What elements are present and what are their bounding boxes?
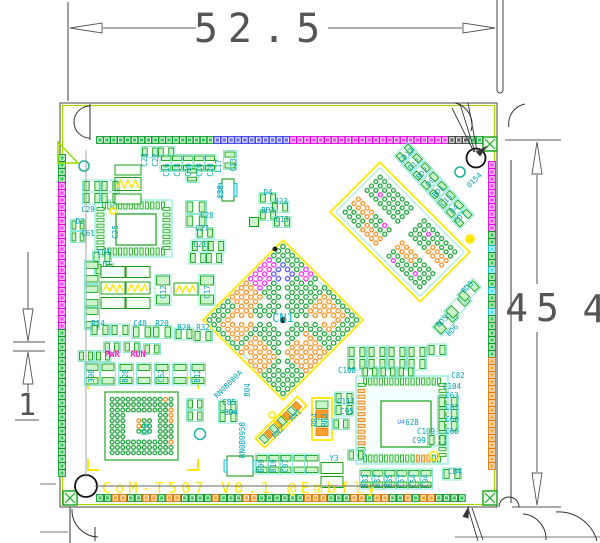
pad — [188, 412, 192, 420]
edge-pad-drill — [490, 275, 493, 278]
passive-c — [333, 419, 350, 430]
pad — [224, 460, 227, 472]
bga-ball-pad — [252, 335, 258, 341]
bga-ball-pad — [351, 209, 357, 215]
pad — [102, 194, 107, 203]
refdes-label: RR3 — [320, 413, 329, 427]
pad — [174, 377, 186, 383]
label-cn1: CN1 — [272, 311, 294, 325]
bga-ball-pad — [426, 249, 432, 255]
qfp-pad — [374, 455, 377, 462]
bga-ball-pad — [284, 377, 290, 383]
bga-ball-pad — [426, 266, 432, 272]
dimension-arrowhead — [532, 142, 542, 174]
refdes-label: R32 — [196, 323, 210, 332]
edge-pad-drill — [490, 443, 493, 446]
edge-pad-drill — [209, 138, 212, 141]
edge-pad-drill — [105, 138, 108, 141]
bga-ball-pad — [262, 326, 268, 332]
bga-ball-pad — [164, 419, 168, 423]
bga-ball-pad — [426, 223, 432, 229]
bga-ball-pad — [158, 451, 162, 455]
bga-ball-pad — [257, 358, 263, 364]
bga-ball-pad — [142, 397, 146, 401]
bga-ball-pad — [356, 196, 362, 202]
bga-ball-pad — [391, 196, 397, 202]
bga-ball-pad — [369, 183, 375, 189]
bga-ball-pad — [298, 363, 304, 369]
edge-pad-drill — [490, 387, 493, 390]
edge-pad-drill — [181, 138, 184, 141]
bga-ball-pad — [317, 289, 323, 295]
edge-pad-drill — [490, 163, 493, 166]
edge-pad-drill — [464, 138, 467, 141]
qfp-pad — [379, 455, 382, 462]
edge-pad-drill — [147, 138, 150, 141]
bga-ball-pad — [153, 403, 157, 407]
edge-pad-drill — [430, 138, 433, 141]
bga-ball-pad — [158, 397, 162, 401]
edge-pad-drill — [374, 138, 377, 141]
pad — [381, 368, 385, 376]
bga-ball-pad — [243, 344, 249, 350]
bga-ball-pad — [399, 214, 405, 220]
bga-ball-pad — [373, 223, 379, 229]
edge-pad-drill — [257, 138, 260, 141]
bga-ball-pad — [377, 174, 383, 180]
bga-ball-pad — [257, 349, 263, 355]
bga-ball-pad — [303, 303, 309, 309]
bga-ball-pad — [294, 294, 300, 300]
drill-arc — [523, 514, 546, 540]
bga-ball-pad — [271, 372, 277, 378]
bga-ball-pad — [280, 381, 286, 387]
edge-pad-drill — [60, 156, 63, 159]
bga-ball-pad — [284, 266, 290, 272]
bga-ball-pad — [417, 275, 423, 281]
bga-ball-pad — [298, 308, 304, 314]
bga-ball-pad — [262, 363, 268, 369]
edge-pad-drill — [490, 296, 493, 299]
edge-pad-drill — [250, 138, 253, 141]
edge-pad-drill — [60, 366, 63, 369]
bga-ball-pad — [110, 440, 114, 444]
fiducial-ring — [79, 161, 89, 171]
bga-ball-pad — [266, 331, 272, 337]
edge-pad-drill — [60, 338, 63, 341]
passive-c — [189, 252, 207, 264]
edge-pad-drill — [60, 247, 63, 250]
bga-ball-pad — [294, 312, 300, 318]
pad — [334, 420, 338, 428]
bga-ball-pad — [116, 403, 120, 407]
edge-pad-drill — [60, 331, 63, 334]
passive-z — [126, 282, 150, 294]
qfp-pad — [390, 378, 393, 385]
refdes-label: C108 — [338, 366, 357, 375]
pad — [86, 262, 98, 268]
qfp-pad — [395, 455, 398, 462]
bga-ball-pad — [294, 340, 300, 346]
fiducial-ring — [455, 167, 465, 177]
pad — [173, 156, 182, 160]
edge-pad-drill — [490, 324, 493, 327]
bga-ball-pad — [158, 413, 162, 417]
bga-ball-pad — [248, 331, 254, 337]
refdes-label: C99 — [412, 436, 426, 445]
pad — [201, 276, 214, 285]
pad — [439, 398, 445, 407]
bga-ball-pad — [298, 271, 304, 277]
bga-ball-pad — [312, 312, 318, 318]
passive-c — [408, 346, 427, 358]
bga-ball-pad — [360, 227, 366, 233]
bga-ball-pad — [434, 249, 440, 255]
edge-strip-left — [59, 155, 66, 477]
bga-ball-pad — [330, 331, 336, 337]
bga-ball-pad — [164, 446, 168, 450]
bga-ball-pad — [404, 271, 410, 277]
edge-pad-drill — [453, 496, 456, 499]
qfp-pad — [145, 248, 148, 255]
bga-ball-pad — [399, 240, 405, 246]
bga-ball-pad — [110, 424, 114, 428]
edge-pad-drill — [264, 138, 267, 141]
bga-ball-pad — [248, 340, 254, 346]
bga-ball-pad — [121, 413, 125, 417]
inductor-zigzag — [117, 180, 139, 187]
edge-pad-drill — [140, 138, 143, 141]
edge-pad-drill — [60, 387, 63, 390]
bga-ball-pad — [303, 367, 309, 373]
passive-c — [205, 252, 223, 264]
pad — [360, 360, 365, 369]
edge-pad-drill — [60, 268, 63, 271]
bga-ball-pad — [239, 312, 245, 318]
bga-ball-pad — [421, 218, 427, 224]
refdes-label: C18 — [173, 163, 182, 177]
edge-pad-drill — [326, 138, 329, 141]
bga-ball-pad — [430, 236, 436, 242]
bga-ball-pad — [148, 419, 152, 423]
edge-pad-drill — [490, 345, 493, 348]
refdes-label: C109 — [417, 427, 435, 436]
qfp-pad — [108, 202, 111, 209]
bga-ball-pad — [148, 397, 152, 401]
bga-ball-pad — [377, 227, 383, 233]
refdes-label: C82 — [451, 371, 465, 380]
edge-pad-drill — [490, 359, 493, 362]
bga-ball-pad — [266, 303, 272, 309]
edge-pad-drill — [490, 240, 493, 243]
bga-ball-pad — [373, 231, 379, 237]
bga-ball-pad — [303, 331, 309, 337]
pad — [138, 365, 150, 371]
courtyard-bracket — [88, 459, 99, 470]
refdes-label: C22 — [151, 153, 160, 167]
mounting-hole — [75, 475, 97, 497]
bga-ball-pad — [377, 218, 383, 224]
qfp-pad — [432, 378, 435, 385]
bga-ball-pad — [284, 257, 290, 263]
edge-pad-drill — [490, 170, 493, 173]
bga-ball-pad — [116, 435, 120, 439]
edge-pad-drill — [60, 233, 63, 236]
edge-pad-drill — [445, 496, 448, 499]
bga-ball-pad — [443, 258, 449, 264]
bga-ball-pad — [408, 275, 414, 281]
bga-ball-pad — [284, 294, 290, 300]
dimension-arrowhead — [23, 352, 33, 384]
bga-ball-pad — [434, 240, 440, 246]
bga-ball-pad — [413, 227, 419, 233]
refdes-label: C21 — [193, 240, 207, 249]
qfp-pad — [416, 455, 419, 462]
bga-ball-pad — [434, 258, 440, 264]
refdes-label: BD6 — [444, 322, 460, 338]
pad — [72, 233, 76, 241]
edge-pad-drill — [236, 138, 239, 141]
edge-pad-drill — [60, 415, 63, 418]
bga-ball-pad — [158, 424, 162, 428]
qfp-pad — [406, 455, 409, 462]
bga-ball-pad — [413, 280, 419, 286]
bga-ball-pad — [257, 321, 263, 327]
edge-pad-drill — [60, 212, 63, 215]
bga-ball-pad — [211, 312, 217, 318]
edge-pad-drill — [243, 138, 246, 141]
bga-ball-pad — [303, 294, 309, 300]
bga-ball-pad — [289, 326, 295, 332]
bga-ball-pad — [137, 440, 141, 444]
edge-pad-drill — [333, 138, 336, 141]
bga-ball-pad — [364, 188, 370, 194]
bga-ball-pad — [121, 440, 125, 444]
bga-ball-pad — [239, 331, 245, 337]
bga-ball-pad — [148, 451, 152, 455]
bga-ball-pad — [169, 397, 173, 401]
bga-ball-pad — [303, 340, 309, 346]
refdes-label: L17 — [214, 159, 223, 173]
bga-ball-pad — [284, 276, 290, 282]
bga-ball-pad — [413, 236, 419, 242]
bga-ball-pad — [137, 419, 141, 423]
edge-pad-drill — [399, 496, 402, 499]
qfp-pad — [358, 413, 365, 416]
bga-ball-pad — [239, 303, 245, 309]
pad — [97, 352, 101, 360]
bga-ball-pad — [116, 397, 120, 401]
bga-ball-pad — [271, 271, 277, 277]
pad — [184, 156, 193, 160]
edge-pad-drill — [347, 138, 350, 141]
qfp-pad — [156, 202, 159, 209]
pad — [399, 368, 403, 376]
bga-ball-pad — [395, 262, 401, 268]
bga-ball-pad — [360, 218, 366, 224]
pad — [95, 182, 100, 191]
edge-pad-drill — [354, 138, 357, 141]
edge-pad-drill — [60, 352, 63, 355]
marker-dot — [466, 235, 474, 243]
edge-pad-drill — [60, 429, 63, 432]
bga-ball-pad — [225, 317, 231, 323]
refdes-label: BD4 — [224, 408, 238, 417]
bga-ball-pad — [417, 266, 423, 272]
edge-pad-drill — [60, 219, 63, 222]
bga-ball-pad — [110, 446, 114, 450]
bga-ball-pad — [257, 340, 263, 346]
refdes-label: B20 — [177, 323, 191, 332]
pad — [321, 463, 343, 474]
bga-ball-pad — [335, 317, 341, 323]
qfp-pad — [395, 378, 398, 385]
bga-ball-pad — [271, 262, 277, 268]
bga-ball-pad — [110, 451, 114, 455]
bga-ball-pad — [312, 285, 318, 291]
bga-ball-pad — [158, 403, 162, 407]
bga-ball-pad — [252, 344, 258, 350]
dimension-arrowhead — [532, 473, 542, 505]
ic-outline — [330, 162, 469, 301]
bga-ball-pad — [294, 377, 300, 383]
bga-ball-pad — [248, 321, 254, 327]
drill-arc — [509, 104, 525, 127]
bga-ball-pad — [116, 440, 120, 444]
bga-ball-pad — [351, 218, 357, 224]
bga-ball-pad — [369, 227, 375, 233]
bga-ball-pad — [335, 326, 341, 332]
qfp-pad — [358, 383, 365, 386]
drill-arc — [497, 90, 503, 93]
qfp-pad — [379, 378, 382, 385]
bga-ball-pad — [312, 340, 318, 346]
bga-ball-pad — [262, 289, 268, 295]
qfp-pad — [140, 248, 143, 255]
bga-ball-pad — [395, 245, 401, 251]
bga-ball-pad — [137, 408, 141, 412]
pad — [188, 400, 192, 408]
edge-pad-drill — [60, 261, 63, 264]
qfp-pad — [416, 378, 419, 385]
bga-ball-pad — [116, 419, 120, 423]
bga-ball-pad — [364, 205, 370, 211]
refdes-label: C10 — [195, 163, 204, 177]
bga-ball-pad — [275, 358, 281, 364]
edge-pad-drill — [429, 496, 432, 499]
bga-ball-pad — [248, 358, 254, 364]
bga-ball-pad — [121, 429, 125, 433]
edge-pad-drill — [490, 261, 493, 264]
bga-ball-pad — [360, 201, 366, 207]
passive-c — [137, 363, 152, 385]
bga-ball-pad — [298, 354, 304, 360]
bga-ball-pad — [252, 326, 258, 332]
bga-ball-pad — [326, 326, 332, 332]
bga-ball-pad — [421, 271, 427, 277]
bga-ball-pad — [275, 303, 281, 309]
bga-ball-pad — [248, 349, 254, 355]
bga-ball-pad — [169, 446, 173, 450]
refdes-label: C29 — [81, 205, 95, 214]
bga-ball-pad — [121, 446, 125, 450]
bga-ball-pad — [225, 335, 231, 341]
drill-arc — [499, 497, 519, 507]
edge-pad-drill — [416, 138, 419, 141]
refdes-label: C11 — [97, 248, 111, 257]
corner-fiducial-pad — [63, 491, 77, 505]
bga-ball-pad — [266, 349, 272, 355]
bga-ball-pad — [229, 321, 235, 327]
pad — [389, 360, 394, 369]
bga-ball-pad — [137, 397, 141, 401]
inductor-zigzag — [176, 286, 196, 293]
bga-ball-pad — [116, 424, 120, 428]
qfp-pad — [390, 455, 393, 462]
bga-ball-pad — [395, 201, 401, 207]
edge-pad-drill — [285, 138, 288, 141]
bga-ball-pad — [421, 245, 427, 251]
edge-pad-drill — [409, 138, 412, 141]
edge-pad-drill — [60, 310, 63, 313]
pad — [84, 182, 89, 191]
qfp-pad — [358, 395, 365, 398]
edge-pad-drill — [414, 496, 417, 499]
bga-ball-pad — [426, 231, 432, 237]
bga-ball-pad — [289, 372, 295, 378]
pcb-cad-canvas: C25C23C22C16C18C19C10C20C13C30L17C28C27C… — [0, 0, 600, 543]
edge-pad-drill — [98, 138, 101, 141]
bga-ball-pad — [317, 326, 323, 332]
bga-ball-pad — [158, 419, 162, 423]
edge-pad-drill — [478, 138, 481, 141]
bga-ball-pad — [275, 340, 281, 346]
bga-ball-pad — [110, 403, 114, 407]
qfp-pad — [385, 378, 388, 385]
bga-ball-pad — [126, 408, 130, 412]
qfp-pad — [151, 248, 154, 255]
pad — [155, 345, 159, 353]
refdes-label: 390 — [87, 369, 96, 383]
bga-ball-pad — [395, 209, 401, 215]
edge-pad-drill — [60, 443, 63, 446]
passive-c — [207, 240, 225, 252]
edge-pad-drill — [490, 401, 493, 404]
bga-ball-pad — [169, 440, 173, 444]
edge-pad-drill — [60, 464, 63, 467]
edge-pad-drill — [305, 138, 308, 141]
pad — [349, 451, 353, 459]
bga-ball-pad — [234, 326, 240, 332]
bga-ball-pad — [417, 240, 423, 246]
bga-ball-pad — [110, 408, 114, 412]
bga-ball-pad — [330, 303, 336, 309]
pad — [420, 360, 425, 369]
refdes-label: B09 — [257, 459, 266, 473]
refdes-label: C17 — [203, 285, 212, 299]
bga-ball-pad — [121, 435, 125, 439]
qfp-pad — [124, 248, 127, 255]
bga-ball-pad — [289, 271, 295, 277]
bga-ball-pad — [266, 358, 272, 364]
bga-ball-pad — [280, 253, 286, 259]
drill-arc — [72, 509, 98, 537]
bga-ball-pad — [257, 367, 263, 373]
bga-ball-pad — [382, 223, 388, 229]
edge-pad-drill — [60, 317, 63, 320]
edge-pad-drill — [216, 138, 219, 141]
bga-ball-pad — [257, 331, 263, 337]
